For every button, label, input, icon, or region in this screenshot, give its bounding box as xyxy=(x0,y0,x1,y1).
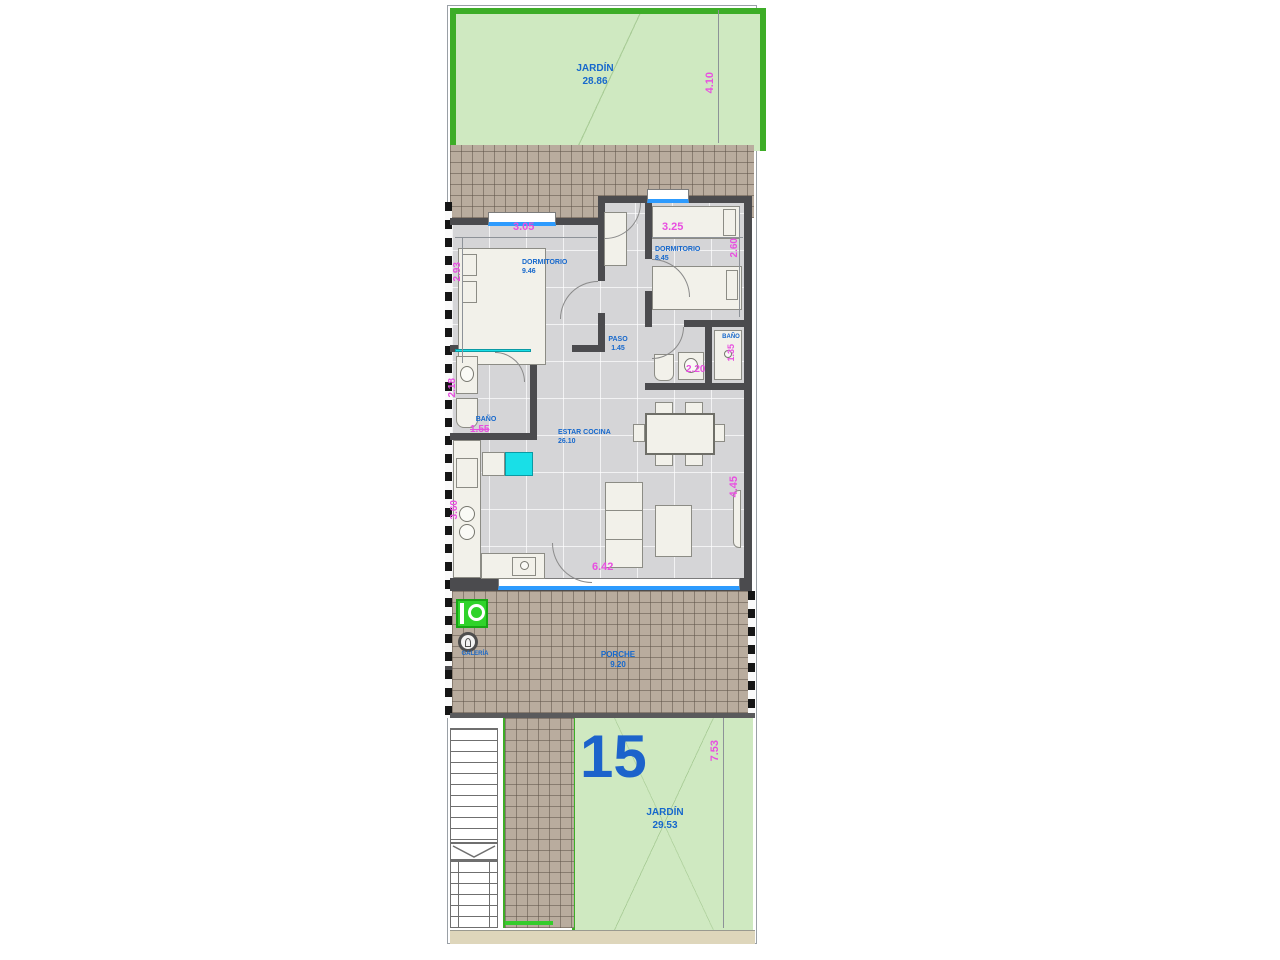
dimension-bath1-depth: 2.18 xyxy=(447,378,458,397)
room-name: JARDÍN xyxy=(576,63,613,74)
living-label: ESTAR COCINA 26.10 xyxy=(558,428,638,446)
garden-top-label: JARDÍN 28.86 xyxy=(540,62,650,88)
room-area: 9.46 xyxy=(522,268,536,275)
sink-drain xyxy=(520,561,529,570)
room-name: GALERÍA xyxy=(462,651,489,657)
dimension-living-width: 6.42 xyxy=(592,561,613,573)
garden-bottom-dimension-line xyxy=(723,718,724,928)
room-name: PORCHE xyxy=(601,650,635,659)
washing-machine-icon xyxy=(456,599,488,628)
wall-bath2-bottom xyxy=(645,383,752,390)
pillow xyxy=(462,254,477,276)
stairs-lower-flight xyxy=(450,860,498,928)
bath1-label: BAÑO xyxy=(466,415,506,424)
dimension-bath2-depth: 1.35 xyxy=(726,344,736,362)
dimension-living-depth: 4.45 xyxy=(728,476,740,497)
tv-screen xyxy=(733,490,741,548)
dimension-kitchen-depth: 3.60 xyxy=(449,500,460,519)
floor-plan-page: { "unit_number": "15", "rooms": { "garde… xyxy=(0,0,1280,960)
washbasin-bowl xyxy=(460,366,474,382)
porch-label: PORCHE 9.20 xyxy=(588,650,648,671)
washing-machine-detergent-drawer xyxy=(460,603,464,624)
room-name: BAÑO xyxy=(476,416,497,423)
party-wall-left xyxy=(445,202,452,718)
fridge xyxy=(482,452,505,476)
room-area: 28.86 xyxy=(582,76,607,87)
room-name: DORMITORIO xyxy=(522,259,567,266)
wall-bedroom2-bottom-b xyxy=(684,320,750,327)
tv-cabinet-divider xyxy=(606,539,642,540)
room-name: JARDÍN xyxy=(646,807,683,818)
stairs-landing xyxy=(450,843,498,860)
hob-ring xyxy=(459,506,475,522)
dim-line-bedroom1-depth xyxy=(462,237,463,363)
wall-bedroom2-left-a xyxy=(645,203,652,259)
wall-right-outer xyxy=(744,196,752,591)
wall-bath2-left xyxy=(705,327,712,383)
shower-screen xyxy=(455,349,531,352)
wall-bedroom2-bottom-a xyxy=(645,320,652,327)
wall-bath1-right xyxy=(530,352,537,440)
dining-chair xyxy=(655,454,673,466)
gallery-label: GALERÍA xyxy=(452,651,498,659)
window-living-terrace xyxy=(498,578,740,590)
water-heater-inner xyxy=(465,638,471,647)
pillow xyxy=(726,270,738,300)
tv-cabinet xyxy=(605,482,643,568)
garden-top-dimension-line xyxy=(718,10,719,143)
pillow xyxy=(723,209,736,236)
stairs-rails xyxy=(458,861,490,927)
tv-cabinet-divider xyxy=(606,510,642,511)
party-wall-right-porch xyxy=(748,591,755,715)
dimension-garden-bottom-depth: 7.53 xyxy=(709,740,721,761)
room-area: 29.53 xyxy=(652,820,677,831)
room-area: 26.10 xyxy=(558,438,576,445)
hallway-label: PASO 1.45 xyxy=(595,335,641,353)
dimension-bedroom1-width: 3.05 xyxy=(513,221,534,233)
window-bedroom2 xyxy=(647,189,689,203)
stairs-upper-flight xyxy=(450,728,498,843)
dimension-garden-top-depth: 4.10 xyxy=(704,72,716,93)
bedroom1-label: DORMITORIO 9.46 xyxy=(522,258,602,276)
wall-bath1-bottom xyxy=(450,433,537,440)
dimension-bedroom2-width: 3.25 xyxy=(662,221,683,233)
dim-line-bedroom1-width xyxy=(455,237,597,238)
dining-chair xyxy=(685,454,703,466)
water-heater-icon xyxy=(458,632,478,652)
room-area: 1.45 xyxy=(611,345,625,352)
pillow xyxy=(462,281,477,303)
room-name: BAÑO xyxy=(722,334,740,340)
bedroom2-label: DORMITORIO 8.45 xyxy=(655,245,735,263)
unit-number: 15 xyxy=(580,722,647,791)
kitchen-sink xyxy=(456,458,478,488)
kitchen-island-cyan xyxy=(505,452,533,476)
dimension-bedroom1-depth: 2.93 xyxy=(452,262,463,281)
garden-path-green-edge xyxy=(505,921,553,925)
dining-table xyxy=(645,413,715,455)
room-area: 8.45 xyxy=(655,255,669,262)
sidewalk-strip xyxy=(450,930,755,944)
room-name: ESTAR COCINA xyxy=(558,429,611,436)
garden-bottom-label: JARDÍN 29.53 xyxy=(625,806,705,832)
washing-machine-drum xyxy=(468,604,485,621)
dimension-bedroom2-depth: 2.60 xyxy=(729,238,740,257)
dimension-bath1-width: 1.55 xyxy=(470,424,489,435)
room-name: PASO xyxy=(608,336,627,343)
dim-line-bedroom2-depth xyxy=(739,207,740,317)
bath2-label: BAÑO xyxy=(716,334,746,342)
garden-path-tiles xyxy=(503,718,574,928)
hob-ring xyxy=(459,524,475,540)
room-area: 9.20 xyxy=(610,660,626,669)
dimension-bath2-width: 2.20 xyxy=(686,364,705,375)
sofa xyxy=(655,505,692,557)
stairs-direction-chevron xyxy=(451,844,497,859)
room-name: DORMITORIO xyxy=(655,246,700,253)
